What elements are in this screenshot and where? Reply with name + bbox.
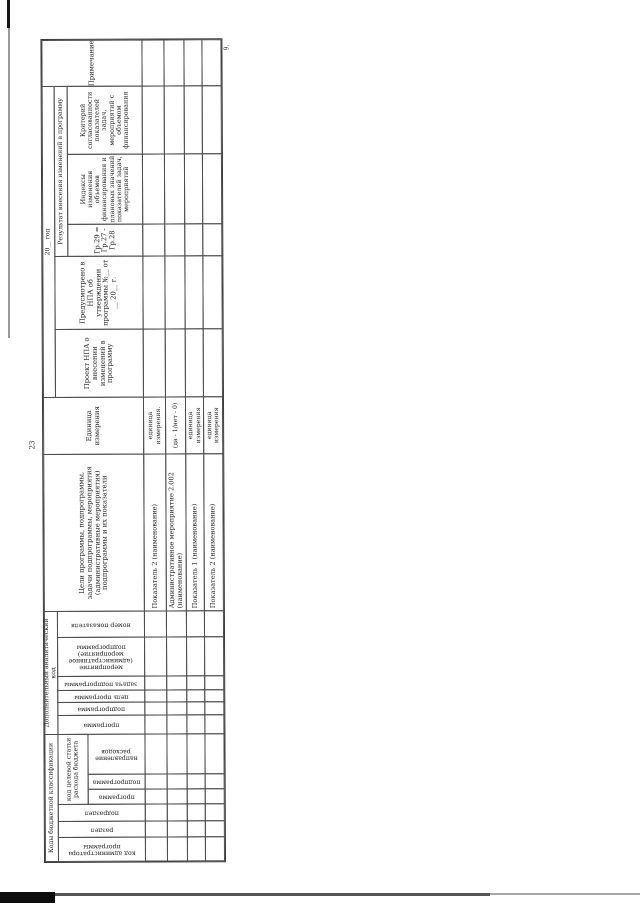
row-label-cell: Административное мероприятие 2.002 (наим…	[165, 453, 187, 611]
header-tsel-programmy: цель программы	[57, 690, 145, 703]
header-programma-ak: программа	[57, 715, 145, 735]
empty-value-cell	[201, 39, 221, 86]
empty-value-cell	[166, 689, 187, 702]
empty-value-cell	[144, 701, 167, 715]
empty-value-cell	[187, 836, 206, 861]
header-podprogramma-ak: подпрограмма	[57, 702, 145, 716]
row-label-cell: Показатель 1 (наименование)	[185, 453, 205, 611]
row-unit-cell: единица измерения	[203, 396, 223, 454]
empty-value-cell	[205, 803, 225, 821]
header-unit: Единица измерения	[43, 397, 144, 455]
empty-value-cell	[186, 701, 205, 715]
empty-value-cell	[145, 836, 168, 861]
row-unit-cell: (да - 1/нет - 0)	[165, 396, 186, 454]
empty-value-cell	[164, 223, 185, 256]
header-goals: Цели программы, подпрограммы, задачи под…	[43, 454, 145, 612]
header-podrazdel: подраздел	[58, 804, 146, 822]
scan-edge-left-dark	[7, 0, 10, 28]
empty-value-cell	[164, 255, 185, 329]
header-criterion: Критерий согласованности показателей зад…	[67, 86, 143, 155]
row-unit-cell: единица измерения	[185, 396, 204, 454]
empty-value-cell	[166, 714, 187, 734]
empty-value-cell	[187, 773, 206, 789]
empty-value-cell	[205, 788, 225, 804]
empty-value-cell	[184, 223, 203, 256]
header-napravlenie-rashodov: направление расходов	[87, 734, 145, 775]
empty-value-cell	[203, 328, 223, 397]
header-note: Примечание	[41, 40, 142, 87]
empty-value-cell	[205, 773, 225, 789]
header-podprogramma-cs: подпрограмма	[88, 774, 146, 790]
empty-value-cell	[184, 85, 203, 154]
header-admin-code: код администратора программы	[58, 837, 146, 862]
row-label-cell: Показатель 2 (наименование)	[203, 453, 224, 611]
footnote-mark: 9.	[223, 45, 230, 51]
empty-value-cell	[167, 836, 188, 861]
empty-value-cell	[186, 733, 205, 774]
empty-value-cell	[145, 773, 168, 789]
header-zadacha-podprogrammy: задача подпрограммы	[57, 676, 145, 691]
empty-value-cell	[185, 328, 204, 397]
scan-edge-bottom-line	[55, 893, 490, 896]
empty-value-cell	[187, 788, 206, 804]
empty-value-cell	[166, 733, 187, 774]
empty-value-cell	[166, 636, 187, 676]
header-group-target-article: код целевой статьи расхода бюджета	[57, 734, 88, 805]
header-meropriyatie: мероприятие (административное мероприяти…	[57, 637, 145, 677]
empty-value-cell	[184, 153, 203, 224]
empty-value-cell	[186, 689, 205, 702]
empty-value-cell	[145, 820, 168, 837]
empty-value-cell	[186, 610, 205, 637]
empty-value-cell	[204, 701, 224, 715]
empty-value-cell	[204, 714, 224, 734]
empty-value-cell	[204, 675, 224, 690]
empty-value-cell	[187, 820, 206, 837]
empty-value-cell	[141, 39, 164, 86]
empty-value-cell	[204, 610, 224, 637]
empty-value-cell	[144, 610, 167, 637]
empty-value-cell	[167, 788, 188, 804]
header-indexes: Индексы изменения объемов финансирования…	[67, 154, 143, 225]
empty-value-cell	[202, 255, 222, 329]
empty-value-cell	[187, 803, 206, 821]
empty-value-cell	[144, 733, 167, 774]
empty-value-cell	[142, 153, 165, 224]
empty-value-cell	[166, 610, 187, 637]
empty-value-cell	[142, 223, 165, 256]
empty-value-cell	[167, 803, 188, 821]
header-programma-cs: программа	[88, 789, 146, 805]
empty-value-cell	[165, 328, 186, 397]
scan-edge-bottom-line-faint	[490, 893, 640, 895]
empty-value-cell	[142, 85, 165, 154]
empty-value-cell	[167, 820, 188, 837]
empty-value-cell	[144, 689, 167, 702]
empty-value-cell	[164, 85, 185, 154]
empty-value-cell	[167, 773, 188, 789]
empty-value-cell	[145, 788, 168, 804]
scan-edge-bottom-bar	[0, 892, 55, 903]
header-nomer-pokazatelya: номер показателя	[57, 611, 145, 638]
empty-value-cell	[204, 689, 224, 702]
empty-value-cell	[166, 675, 187, 690]
header-provided-npa: Предусмотрено в НПА об утверждении прогр…	[54, 256, 143, 330]
header-razdel: раздел	[58, 821, 146, 838]
empty-value-cell	[204, 733, 224, 774]
page-number: 23	[28, 441, 36, 450]
empty-value-cell	[164, 153, 185, 224]
empty-value-cell	[186, 714, 205, 734]
empty-value-cell	[205, 820, 225, 837]
empty-value-cell	[186, 675, 205, 690]
header-project-npa: Проект НПА о внесении изменений в програ…	[55, 329, 144, 398]
empty-value-cell	[143, 328, 166, 397]
empty-value-cell	[144, 675, 167, 690]
empty-value-cell	[202, 223, 222, 256]
empty-value-cell	[205, 836, 225, 861]
header-gr-formula: Гр.29 = Гр.27 - Гр.28	[67, 224, 143, 257]
empty-value-cell	[183, 39, 202, 86]
empty-value-cell	[202, 153, 222, 224]
empty-value-cell	[145, 803, 168, 821]
empty-value-cell	[184, 255, 203, 329]
empty-value-cell	[163, 39, 184, 86]
empty-value-cell	[186, 636, 205, 676]
program-changes-table: Коды бюджетной классификации Дополнитель…	[41, 39, 225, 862]
row-unit-cell: единица измерения.	[143, 396, 166, 454]
scanned-document-page: 23 9. Коды бюджетной классификации Допол…	[0, 0, 640, 905]
empty-value-cell	[204, 636, 224, 676]
empty-value-cell	[202, 85, 222, 154]
row-label-cell: Показатель 2 (наименование)	[143, 453, 167, 611]
empty-value-cell	[144, 636, 167, 676]
empty-value-cell	[142, 255, 165, 329]
empty-value-cell	[144, 714, 167, 734]
empty-value-cell	[166, 701, 187, 715]
scan-edge-left-line	[8, 0, 10, 338]
